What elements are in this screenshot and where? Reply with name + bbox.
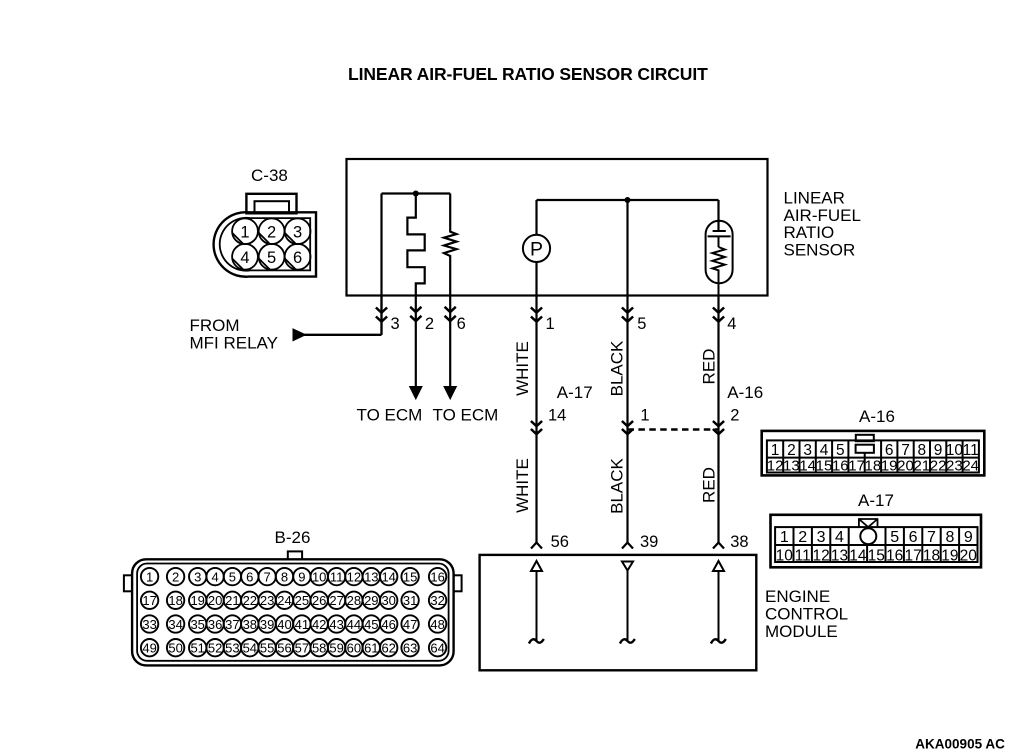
svg-text:57: 57 [295, 641, 309, 656]
svg-text:19: 19 [941, 547, 958, 564]
svg-text:3: 3 [391, 315, 400, 333]
svg-text:4: 4 [727, 315, 736, 333]
svg-text:59: 59 [329, 641, 343, 656]
svg-text:26: 26 [312, 593, 326, 608]
svg-text:WHITE: WHITE [513, 341, 532, 396]
svg-text:38: 38 [243, 617, 257, 632]
svg-text:19: 19 [881, 458, 898, 475]
svg-text:20: 20 [208, 593, 222, 608]
svg-text:58: 58 [312, 641, 326, 656]
svg-text:24: 24 [277, 593, 291, 608]
svg-text:ENGINE: ENGINE [765, 587, 830, 606]
svg-text:RATIO: RATIO [784, 223, 835, 242]
svg-text:44: 44 [347, 617, 361, 632]
svg-text:9: 9 [934, 442, 943, 459]
svg-text:MFI RELAY: MFI RELAY [190, 333, 278, 352]
svg-text:LINEAR AIR-FUEL RATIO SENSOR C: LINEAR AIR-FUEL RATIO SENSOR CIRCUIT [348, 64, 708, 84]
svg-text:8: 8 [945, 529, 954, 546]
svg-text:LINEAR: LINEAR [784, 189, 845, 208]
svg-text:49: 49 [142, 641, 156, 656]
svg-text:RED: RED [700, 349, 719, 385]
svg-text:46: 46 [381, 617, 395, 632]
svg-text:15: 15 [868, 547, 885, 564]
svg-text:TO ECM: TO ECM [357, 406, 423, 425]
svg-text:13: 13 [831, 547, 848, 564]
svg-text:1: 1 [771, 442, 780, 459]
svg-text:61: 61 [364, 641, 378, 656]
svg-text:3: 3 [194, 569, 201, 584]
svg-text:AIR-FUEL: AIR-FUEL [784, 206, 861, 225]
svg-text:47: 47 [403, 617, 417, 632]
svg-text:23: 23 [260, 593, 274, 608]
svg-text:SENSOR: SENSOR [784, 240, 856, 259]
svg-text:7: 7 [263, 569, 270, 584]
svg-text:33: 33 [142, 617, 156, 632]
svg-text:62: 62 [381, 641, 395, 656]
svg-text:12: 12 [347, 569, 361, 584]
svg-text:50: 50 [168, 641, 182, 656]
svg-text:16: 16 [832, 458, 849, 475]
svg-text:9: 9 [964, 529, 973, 546]
svg-text:36: 36 [208, 617, 222, 632]
svg-text:10: 10 [946, 442, 964, 459]
svg-text:C-38: C-38 [251, 166, 288, 185]
svg-text:15: 15 [816, 458, 833, 475]
svg-text:22: 22 [243, 593, 257, 608]
svg-text:FROM: FROM [190, 316, 240, 335]
svg-text:21: 21 [225, 593, 239, 608]
svg-text:45: 45 [364, 617, 378, 632]
svg-text:3: 3 [803, 442, 812, 459]
svg-text:A-17: A-17 [858, 491, 894, 510]
svg-text:MODULE: MODULE [765, 622, 838, 641]
svg-text:2: 2 [787, 442, 796, 459]
svg-text:WHITE: WHITE [513, 458, 532, 513]
svg-text:16: 16 [886, 547, 903, 564]
svg-text:25: 25 [295, 593, 309, 608]
svg-text:BLACK: BLACK [608, 457, 627, 513]
svg-text:19: 19 [190, 593, 204, 608]
svg-text:35: 35 [190, 617, 204, 632]
svg-text:34: 34 [168, 617, 182, 632]
svg-text:B-26: B-26 [275, 528, 311, 547]
svg-text:21: 21 [913, 458, 930, 475]
svg-text:6: 6 [909, 529, 918, 546]
svg-text:3: 3 [817, 529, 826, 546]
svg-text:13: 13 [364, 569, 378, 584]
svg-text:39: 39 [640, 533, 658, 551]
svg-text:5: 5 [637, 315, 646, 333]
svg-text:38: 38 [730, 533, 748, 551]
svg-text:6: 6 [246, 569, 253, 584]
svg-text:40: 40 [277, 617, 291, 632]
svg-text:56: 56 [551, 533, 569, 551]
svg-text:2: 2 [425, 315, 434, 333]
svg-text:23: 23 [946, 458, 963, 475]
svg-text:A-16: A-16 [859, 407, 895, 426]
svg-text:2: 2 [172, 569, 179, 584]
svg-text:60: 60 [347, 641, 361, 656]
svg-text:7: 7 [901, 442, 910, 459]
svg-text:5: 5 [229, 569, 236, 584]
svg-text:39: 39 [260, 617, 274, 632]
svg-text:20: 20 [897, 458, 914, 475]
svg-text:6: 6 [293, 249, 302, 267]
svg-text:6: 6 [885, 442, 894, 459]
svg-text:42: 42 [312, 617, 326, 632]
svg-text:43: 43 [329, 617, 343, 632]
svg-text:9: 9 [298, 569, 305, 584]
svg-text:52: 52 [208, 641, 222, 656]
svg-text:55: 55 [260, 641, 274, 656]
svg-text:11: 11 [963, 442, 979, 459]
svg-text:17: 17 [848, 458, 865, 475]
svg-text:4: 4 [820, 442, 829, 459]
svg-text:18: 18 [168, 593, 182, 608]
svg-text:20: 20 [960, 547, 978, 564]
svg-text:48: 48 [430, 617, 444, 632]
svg-text:1: 1 [546, 315, 555, 333]
svg-text:17: 17 [142, 593, 156, 608]
svg-text:2: 2 [267, 223, 276, 241]
svg-text:5: 5 [267, 249, 276, 267]
svg-text:27: 27 [329, 593, 343, 608]
svg-text:32: 32 [430, 593, 444, 608]
svg-text:8: 8 [917, 442, 926, 459]
svg-text:51: 51 [190, 641, 204, 656]
svg-text:1: 1 [780, 529, 789, 546]
svg-text:14: 14 [849, 547, 867, 564]
svg-text:14: 14 [799, 458, 816, 475]
svg-text:A-16: A-16 [727, 383, 763, 402]
svg-text:1: 1 [240, 223, 249, 241]
svg-text:37: 37 [225, 617, 239, 632]
svg-text:10: 10 [776, 547, 794, 564]
svg-text:41: 41 [295, 617, 309, 632]
svg-text:63: 63 [403, 641, 417, 656]
svg-text:5: 5 [890, 529, 899, 546]
svg-text:RED: RED [700, 467, 719, 503]
svg-text:16: 16 [430, 569, 444, 584]
svg-text:10: 10 [312, 569, 326, 584]
svg-text:2: 2 [798, 529, 807, 546]
svg-text:1: 1 [640, 406, 649, 424]
svg-text:13: 13 [783, 458, 800, 475]
svg-text:28: 28 [347, 593, 361, 608]
svg-text:31: 31 [403, 593, 417, 608]
svg-text:53: 53 [225, 641, 239, 656]
svg-text:4: 4 [835, 529, 844, 546]
svg-text:7: 7 [927, 529, 936, 546]
svg-text:6: 6 [457, 315, 466, 333]
svg-text:14: 14 [381, 569, 395, 584]
svg-text:4: 4 [240, 249, 249, 267]
svg-text:12: 12 [767, 458, 784, 475]
svg-text:22: 22 [930, 458, 947, 475]
svg-text:15: 15 [403, 569, 417, 584]
svg-text:BLACK: BLACK [608, 340, 627, 396]
svg-text:18: 18 [923, 547, 940, 564]
svg-text:8: 8 [281, 569, 288, 584]
svg-text:56: 56 [277, 641, 291, 656]
svg-text:AKA00905 AC: AKA00905 AC [915, 736, 1005, 751]
svg-text:1: 1 [146, 569, 153, 584]
svg-text:3: 3 [293, 223, 302, 241]
svg-text:54: 54 [243, 641, 257, 656]
svg-text:64: 64 [430, 641, 444, 656]
svg-text:24: 24 [962, 458, 979, 475]
svg-text:12: 12 [812, 547, 829, 564]
svg-text:11: 11 [795, 547, 811, 564]
svg-text:A-17: A-17 [557, 383, 593, 402]
svg-text:5: 5 [836, 442, 845, 459]
svg-text:18: 18 [865, 458, 882, 475]
svg-text:29: 29 [364, 593, 378, 608]
svg-text:14: 14 [548, 406, 566, 424]
svg-text:4: 4 [211, 569, 218, 584]
svg-text:TO ECM: TO ECM [433, 406, 499, 425]
svg-text:CONTROL: CONTROL [765, 605, 848, 624]
svg-text:2: 2 [730, 406, 739, 424]
svg-text:30: 30 [381, 593, 395, 608]
svg-text:17: 17 [904, 547, 921, 564]
svg-text:P: P [530, 238, 543, 260]
svg-text:11: 11 [330, 569, 344, 584]
